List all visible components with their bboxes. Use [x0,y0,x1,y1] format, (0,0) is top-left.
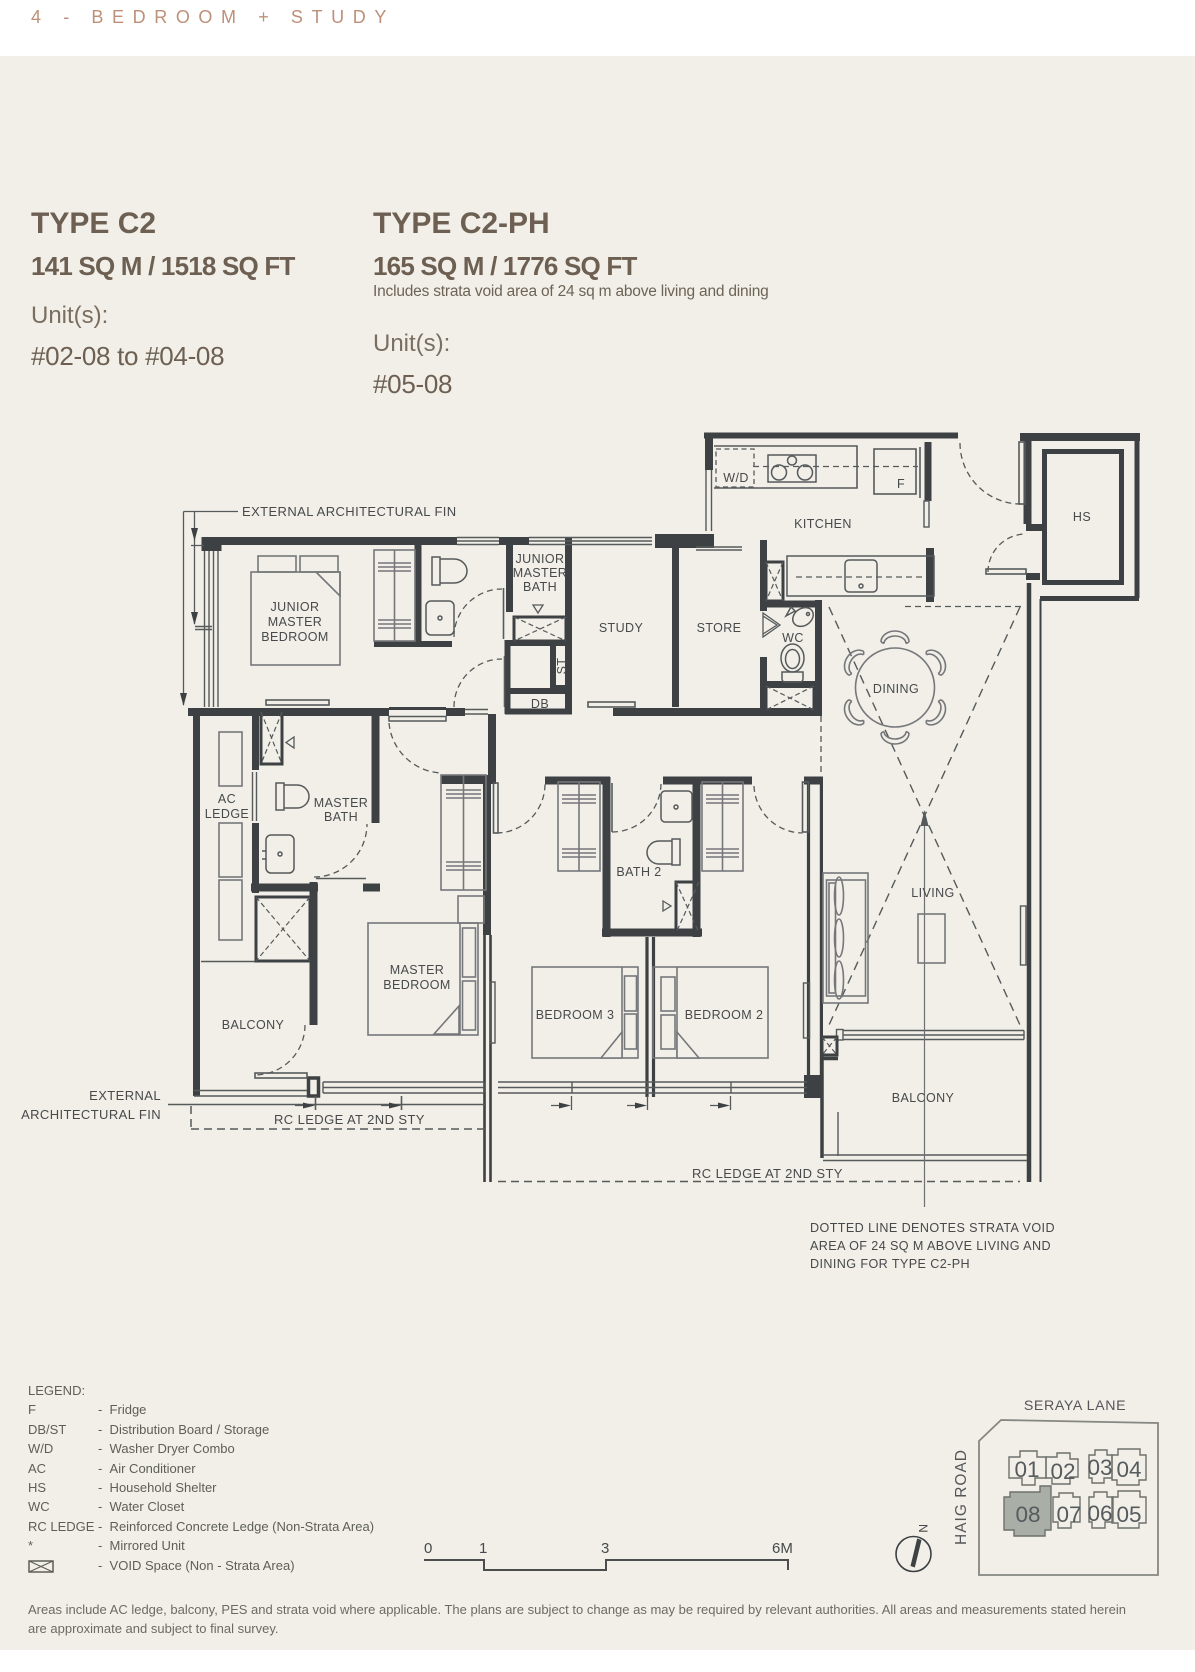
svg-text:MASTER: MASTER [390,963,445,977]
svg-text:MASTER: MASTER [314,796,369,810]
svg-text:BALCONY: BALCONY [222,1018,285,1032]
svg-text:RC LEDGE AT 2ND STY: RC LEDGE AT 2ND STY [274,1112,425,1127]
svg-text:LIVING: LIVING [911,886,954,900]
svg-text:MASTER: MASTER [513,566,568,580]
svg-text:DOTTED LINE DENOTES STRATA VOI: DOTTED LINE DENOTES STRATA VOID [810,1221,1055,1235]
svg-text:BEDROOM 3: BEDROOM 3 [536,1008,615,1022]
svg-text:BALCONY: BALCONY [892,1091,955,1105]
svg-text:BATH: BATH [523,580,557,594]
svg-text:HS: HS [1073,510,1091,524]
svg-text:DINING FOR TYPE C2-PH: DINING FOR TYPE C2-PH [810,1257,970,1271]
svg-text:EXTERNAL: EXTERNAL [89,1088,161,1103]
svg-text:BEDROOM: BEDROOM [383,978,450,992]
svg-text:KITCHEN: KITCHEN [794,517,852,531]
svg-text:MASTER: MASTER [268,615,323,629]
svg-text:AREA OF 24 SQ M ABOVE LIVING A: AREA OF 24 SQ M ABOVE LIVING AND [810,1239,1051,1253]
svg-text:05: 05 [1116,1502,1141,1527]
svg-text:EXTERNAL ARCHITECTURAL FIN: EXTERNAL ARCHITECTURAL FIN [242,504,457,519]
svg-text:06: 06 [1087,1501,1112,1526]
svg-text:BEDROOM 2: BEDROOM 2 [685,1008,764,1022]
svg-text:03: 03 [1087,1455,1112,1480]
svg-text:04: 04 [1116,1457,1141,1482]
svg-text:BATH: BATH [324,810,358,824]
svg-text:01: 01 [1014,1457,1039,1482]
svg-text:WC: WC [782,631,804,645]
svg-text:07: 07 [1056,1502,1081,1527]
svg-text:STORE: STORE [697,621,742,635]
svg-text:BEDROOM: BEDROOM [261,630,328,644]
svg-text:W/D: W/D [723,471,749,485]
svg-text:08: 08 [1015,1502,1040,1527]
svg-text:JUNIOR: JUNIOR [516,552,565,566]
svg-text:N: N [916,1524,930,1533]
svg-text:SERAYA LANE: SERAYA LANE [1024,1398,1126,1414]
svg-text:02: 02 [1050,1459,1075,1484]
svg-text:ARCHITECTURAL FIN: ARCHITECTURAL FIN [21,1107,161,1122]
svg-text:BATH 2: BATH 2 [616,865,661,879]
svg-text:STUDY: STUDY [599,621,644,635]
svg-text:DINING: DINING [873,682,919,696]
svg-text:F: F [897,477,905,491]
svg-text:DB: DB [531,697,549,711]
svg-text:LEDGE: LEDGE [205,807,249,821]
svg-text:3: 3 [601,1540,609,1557]
svg-text:AC: AC [218,792,236,806]
svg-text:HAIG ROAD: HAIG ROAD [953,1449,970,1545]
svg-text:JUNIOR: JUNIOR [271,600,320,614]
svg-text:RC LEDGE AT 2ND STY: RC LEDGE AT 2ND STY [692,1166,843,1181]
svg-text:1: 1 [479,1540,487,1557]
svg-text:0: 0 [424,1540,432,1557]
svg-text:6M: 6M [772,1540,793,1557]
svg-text:ST: ST [555,658,569,675]
